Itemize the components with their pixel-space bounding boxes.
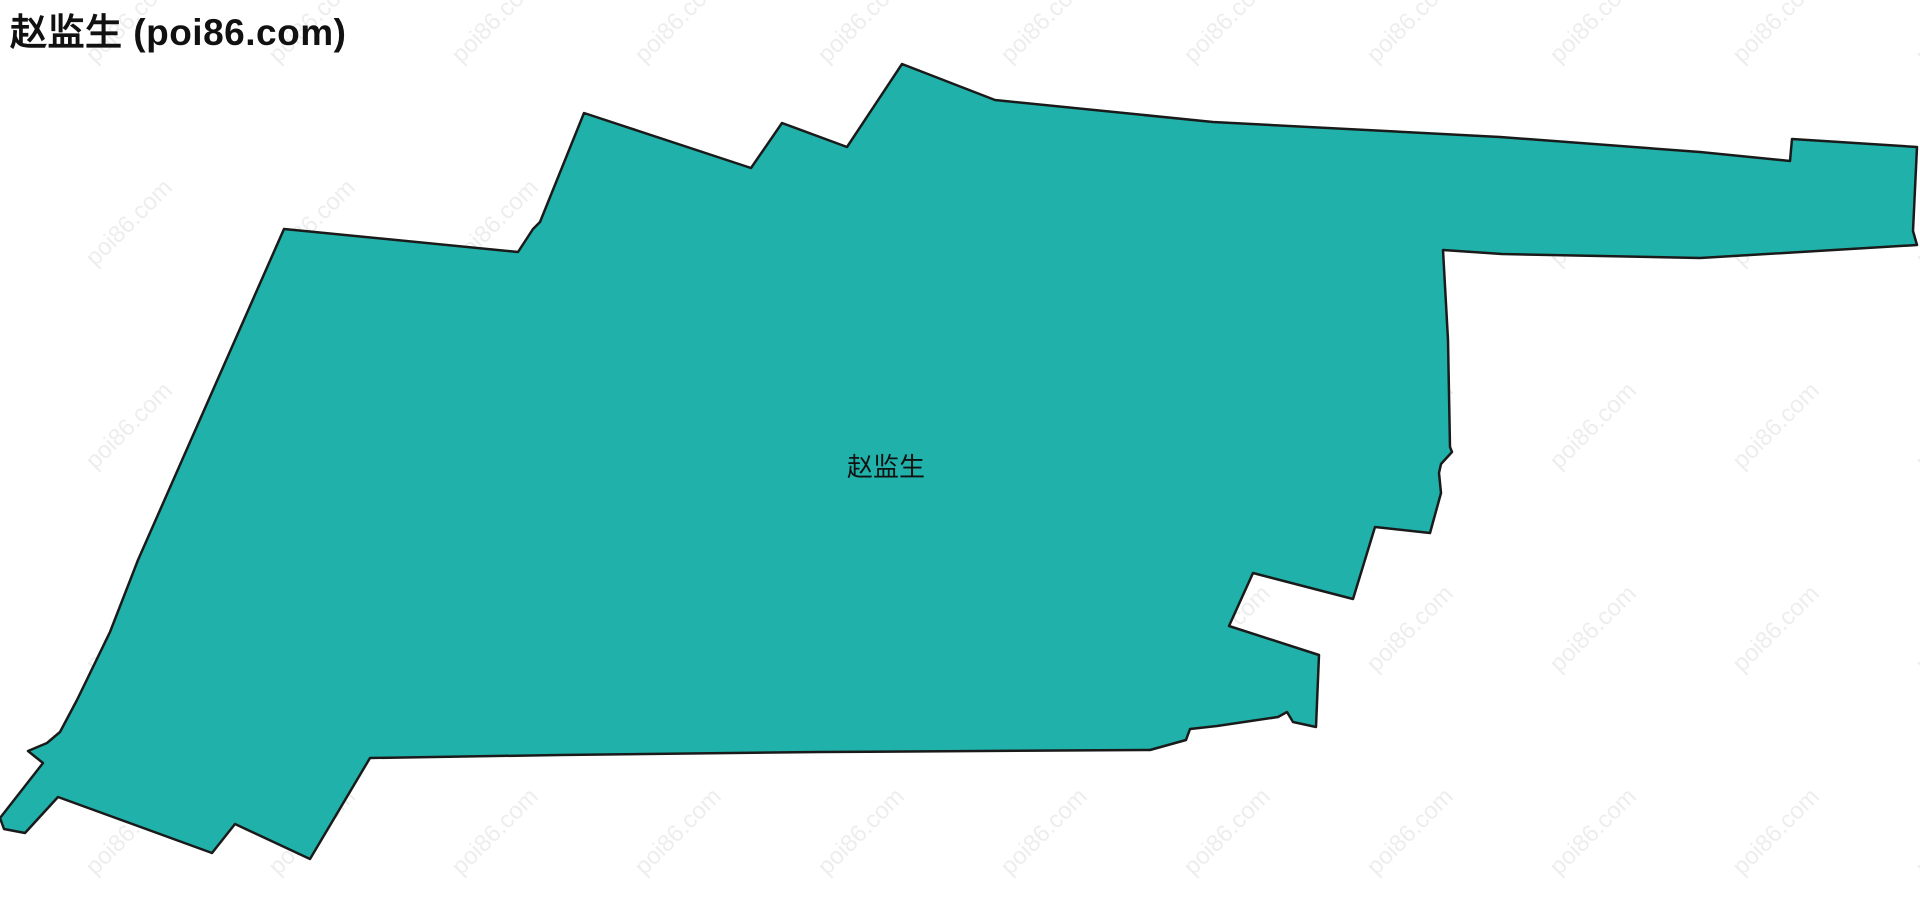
- region-polygon-svg: 赵监生: [0, 0, 1920, 924]
- region-label: 赵监生: [847, 452, 925, 482]
- region-polygon: [0, 64, 1917, 859]
- map-canvas: poi86.compoi86.compoi86.compoi86.compoi8…: [0, 0, 1920, 924]
- page-title: 赵监生 (poi86.com): [10, 2, 346, 56]
